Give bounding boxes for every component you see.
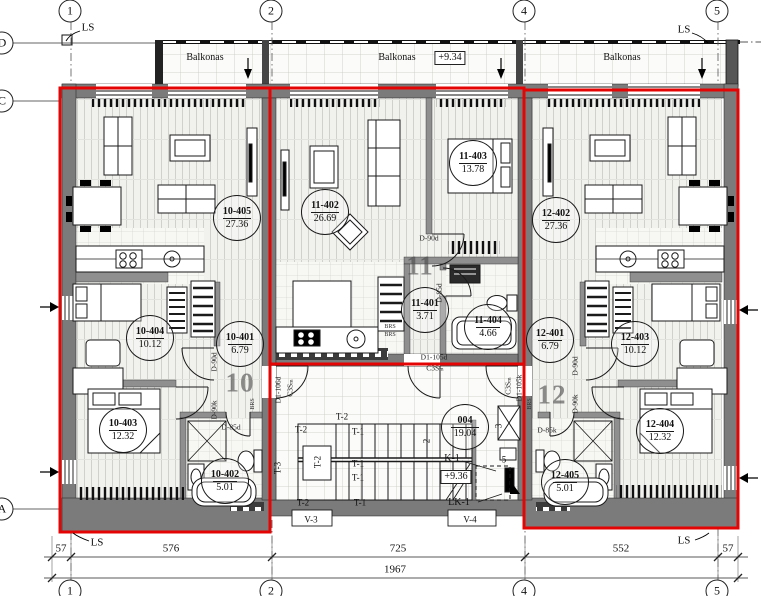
stair-label-T-1: T-1 [354, 499, 366, 508]
room-code: 12-405 [551, 470, 579, 482]
dimension-label: 576 [163, 544, 180, 555]
door-label-BRS: BRS [384, 324, 395, 330]
room-area: 6.79 [228, 344, 252, 357]
balcony-label: Balkonas [378, 53, 415, 63]
stair-label-T-2: T-2 [295, 426, 307, 435]
stair-label-T-1: T-1 [352, 428, 364, 437]
grid-bubble-top-4: 4 [513, 0, 536, 23]
room-code: 10-401 [226, 332, 254, 344]
door-label-D-85d: D-85d [435, 283, 443, 302]
stair-label-5: 5 [502, 456, 507, 465]
room-area: 5.01 [553, 482, 577, 495]
room-tag-11-402: 11-40226.69 [301, 189, 349, 235]
door-label-BRS: BRS [384, 332, 395, 338]
dimension-label: 57 [723, 544, 734, 555]
stair-label-T-1: T-1 [352, 460, 364, 469]
grid-bubble-top-2: 2 [260, 0, 283, 23]
room-code: 12-401 [536, 328, 564, 340]
room-code: 11-402 [311, 200, 339, 212]
stair-label-V-3: V-3 [304, 516, 317, 525]
apartment-number-12: 12 [538, 382, 567, 409]
stair-label-3: 3 [495, 424, 504, 429]
door-label-C3Sₘ: C3Sₘ [286, 379, 294, 397]
door-label-D-90d: D-90d [210, 352, 218, 371]
grid-bubble-bottom-5: 5 [706, 580, 729, 596]
room-tag-12-404: 12-40412.32 [636, 408, 684, 454]
floor-plan: 12451245DCABalkonasBalkonasBalkonas+9.34… [0, 0, 761, 596]
door-label-D-90d: D-90d [419, 234, 438, 242]
level-mark-balcony: +9.34 [434, 51, 465, 65]
balcony-label: Balkonas [186, 53, 223, 63]
room-area: 6.79 [538, 340, 562, 353]
apartment-number-10: 10 [226, 370, 255, 397]
dimension-label: 57 [56, 544, 67, 555]
room-tag-10-404: 10-40410.12 [126, 315, 174, 361]
level-mark-stairwell: +9.36 [440, 470, 471, 484]
door-label-D-85k: D-85k [537, 426, 556, 434]
stair-label-2: 2 [423, 439, 432, 444]
room-area: 27.36 [223, 218, 252, 231]
room-code: 11-404 [474, 315, 502, 327]
room-area: 10.12 [621, 344, 650, 357]
room-code: 10-405 [223, 206, 251, 218]
door-label-BRS: BRS [250, 398, 256, 409]
dimension-total: 1967 [384, 565, 406, 576]
grid-bubble-bottom-1: 1 [59, 580, 82, 596]
stair-label-T-3: T-3 [274, 462, 283, 474]
stair-label-T-1: T-1 [352, 474, 364, 483]
room-tag-12-401: 12-4016.79 [526, 317, 574, 363]
room-tag-004: 00419.04 [441, 404, 489, 450]
ls-label: LS [91, 538, 104, 549]
room-area: 27.36 [542, 220, 571, 233]
grid-bubble-top-5: 5 [706, 0, 729, 23]
door-label-D-90k: D-90k [210, 400, 218, 419]
room-code: 004 [458, 415, 473, 427]
room-code: 11-403 [459, 151, 487, 163]
room-area: 3.71 [413, 310, 437, 323]
grid-bubble-bottom-4: 4 [513, 580, 536, 596]
dimension-label: 725 [390, 544, 407, 555]
door-label-D-90k: D-90k [571, 394, 579, 413]
stair-label-K-1: K-1 [444, 454, 460, 464]
room-area: 26.69 [311, 212, 340, 225]
room-tag-11-403: 11-40313.78 [449, 140, 497, 186]
room-code: 12-404 [646, 419, 674, 431]
room-tag-10-403: 10-40312.32 [99, 407, 147, 453]
door-label-C3Sₘ: C3Sₘ [426, 364, 444, 372]
stair-label-LK-1: LK-1 [448, 498, 470, 508]
grid-bubble-bottom-2: 2 [260, 580, 283, 596]
ls-label: LS [678, 536, 691, 547]
room-tag-10-401: 10-4016.79 [216, 321, 264, 367]
plan-graphics [0, 0, 761, 596]
room-code: 12-402 [542, 208, 570, 220]
door-label-D-85d: D-85d [221, 423, 240, 431]
door-label-D1-105k: D1-105k [515, 375, 523, 402]
door-label-BRS: BRS [527, 398, 533, 409]
room-tag-10-402: 10-4025.01 [201, 458, 249, 504]
room-area: 12.32 [109, 430, 138, 443]
stair-label-T-2: T-2 [314, 456, 323, 468]
grid-bubble-top-1: 1 [59, 0, 82, 23]
room-code: 10-403 [109, 418, 137, 430]
room-code: 12-403 [621, 332, 649, 344]
room-tag-12-402: 12-40227.36 [532, 197, 580, 243]
room-tag-12-405: 12-4055.01 [541, 459, 589, 505]
stair-label-T-2: T-2 [336, 413, 348, 422]
door-label-D-90d: D-90d [571, 356, 579, 375]
ls-label: LS [678, 25, 691, 36]
door-label-D1-105d: D1-105d [421, 353, 448, 361]
room-tag-12-403: 12-40310.12 [611, 321, 659, 367]
room-area: 13.78 [459, 163, 488, 176]
room-tag-11-404: 11-4044.66 [464, 304, 512, 350]
room-tag-10-405: 10-40527.36 [213, 195, 261, 241]
room-area: 5.01 [213, 481, 237, 494]
dimension-label: 552 [613, 544, 630, 555]
room-area: 19.04 [451, 427, 480, 440]
door-label-D1-106d: D1-106d [274, 377, 282, 404]
balcony-label: Balkonas [603, 53, 640, 63]
room-code: 10-402 [211, 469, 239, 481]
door-label-C3Sₘ: C3Sₘ [504, 377, 512, 395]
stair-label-T-2: T-2 [297, 499, 309, 508]
room-area: 4.66 [476, 327, 500, 340]
room-code: 10-404 [136, 326, 164, 338]
room-area: 12.32 [646, 431, 675, 444]
stair-label-V-4: V-4 [463, 516, 476, 525]
ls-label: LS [82, 23, 95, 34]
apartment-number-11: 11 [406, 253, 434, 280]
room-area: 10.12 [136, 338, 165, 351]
